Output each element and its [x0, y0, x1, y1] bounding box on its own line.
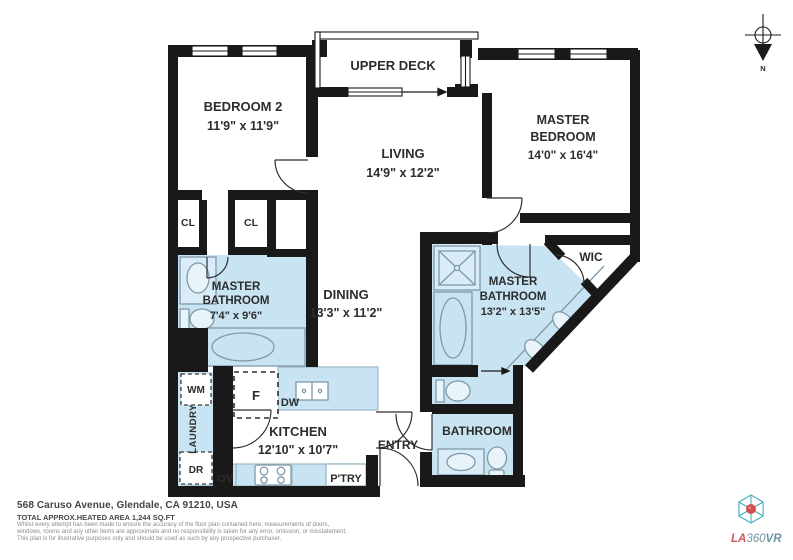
closet-label: CL	[244, 217, 259, 229]
disclaimer: Whilst every attempt has been made to en…	[17, 522, 347, 544]
window	[570, 49, 607, 59]
window	[242, 46, 277, 56]
floor-plan-drawing: N UPPER DECK BEDROOM 2 11'9" x 11'9" LIV…	[0, 0, 793, 560]
room-label-kitchen: KITCHEN	[269, 424, 327, 439]
compass-icon: N	[745, 14, 781, 73]
compass-needle	[754, 44, 772, 61]
stove-icon	[255, 465, 291, 485]
logo-part-la: LA	[731, 533, 746, 545]
oven-label: OV	[217, 473, 234, 485]
room-label-living: LIVING	[381, 146, 424, 161]
disclaimer-line: This plan is for illustrative purposes o…	[17, 536, 347, 543]
toilet-icon	[488, 447, 507, 476]
room-label-master-bath-right-2: BATHROOM	[480, 291, 547, 303]
la360vr-cube-icon	[733, 492, 769, 528]
door-arc	[275, 160, 308, 193]
room-label-master-bedroom-1: MASTER	[537, 113, 590, 127]
room-label-wic: WIC	[579, 250, 603, 264]
room-label-master-bath-left-2: BATHROOM	[203, 295, 270, 307]
area-line: TOTAL APPROX.HEATED AREA 1,244 SQ.FT	[17, 513, 175, 522]
laundry-label: LAUNDRY	[188, 404, 199, 454]
room-label-upper-deck: UPPER DECK	[350, 58, 436, 73]
disclaimer-line: windows, rooms and any other items are a…	[17, 529, 347, 536]
room-dims-bedroom2: 11'9" x 11'9"	[207, 119, 279, 133]
door-arc	[487, 198, 522, 233]
window	[518, 49, 555, 59]
fridge-label: F	[252, 388, 260, 403]
window	[192, 46, 228, 56]
disclaimer-line: Whilst every attempt has been made to en…	[17, 522, 347, 529]
room-dims-living: 14'9" x 12'2"	[366, 166, 439, 180]
closet-label: CL	[181, 217, 196, 229]
slide-arrow-icon	[402, 89, 446, 96]
address-line: 568 Caruso Avenue, Glendale, CA 91210, U…	[17, 500, 238, 511]
sink-vanity-icon	[438, 449, 484, 475]
room-label-master-bath-left-1: MASTER	[212, 281, 261, 293]
logo-part-vr: VR	[766, 533, 782, 545]
deck-rail	[315, 32, 320, 88]
washer-label: WM	[187, 385, 205, 396]
room-dims-master-bedroom: 14'0" x 16'4"	[528, 148, 598, 162]
window	[461, 56, 470, 87]
door-arc	[380, 448, 418, 486]
floor-plan-page: N UPPER DECK BEDROOM 2 11'9" x 11'9" LIV…	[0, 0, 793, 560]
room-label-master-bedroom-2: BEDROOM	[530, 130, 595, 144]
room-label-bathroom: BATHROOM	[442, 424, 512, 438]
room-label-dining: DINING	[323, 287, 369, 302]
room-label-master-bath-right-1: MASTER	[489, 276, 538, 288]
sliding-door	[348, 88, 402, 96]
toilet-icon	[436, 380, 470, 402]
compass-north-label: N	[760, 64, 765, 73]
dryer-label: DR	[189, 465, 204, 476]
pantry-label: P'TRY	[330, 473, 362, 485]
shower-icon	[434, 246, 480, 290]
logo-part-360: 360	[746, 533, 765, 545]
deck-rail	[315, 32, 478, 39]
room-label-bedroom2: BEDROOM 2	[204, 99, 283, 114]
la360vr-wordmark: LA360VR	[731, 533, 782, 545]
kitchen-sink-icon	[296, 382, 328, 400]
room-dims-kitchen: 12'10" x 10'7"	[258, 443, 338, 457]
room-label-entry: ENTRY	[378, 438, 418, 452]
room-dims-master-bath-right: 13'2" x 13'5"	[481, 306, 546, 318]
room-dims-master-bath-left: 7'4" x 9'6"	[210, 310, 262, 322]
dishwasher-label: DW	[281, 397, 300, 409]
room-dims-dining: 13'3" x 11'2"	[310, 306, 383, 320]
